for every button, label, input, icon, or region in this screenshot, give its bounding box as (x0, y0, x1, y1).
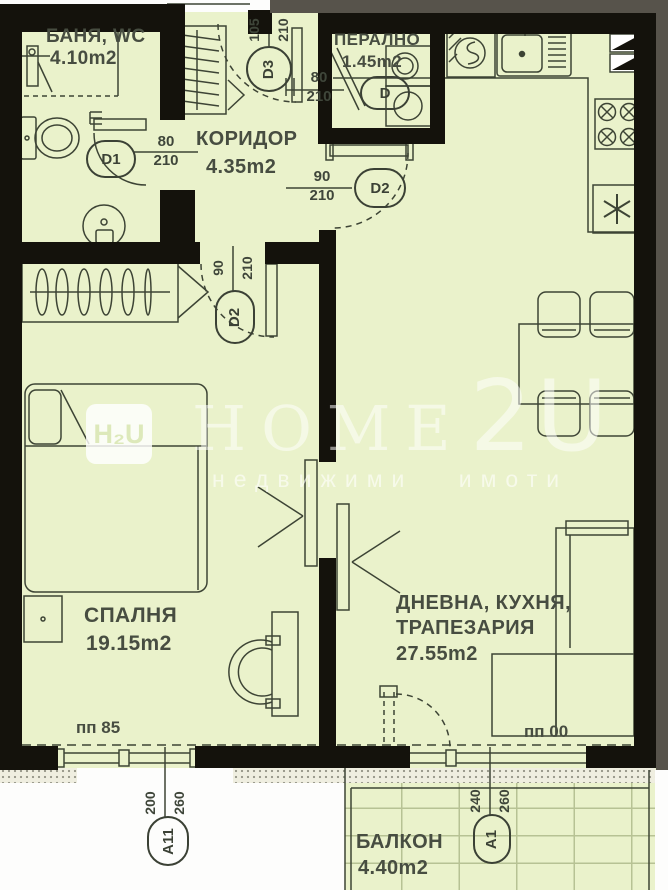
dim-d2-bedroom-width: 90 (211, 260, 226, 276)
wall-right (634, 12, 656, 748)
dim-a1: 240 260 (468, 779, 512, 823)
door-tag-d: D (360, 76, 410, 110)
living-area: 27.55m2 (396, 643, 478, 666)
dim-d1: 80 210 (134, 132, 198, 170)
door-tag-d2-bedroom-text: D2 (227, 307, 244, 326)
desk-chair-symbol (229, 612, 298, 716)
living-label-line1: ДНЕВНА, КУХНЯ, (396, 592, 571, 615)
door-tag-d3: D3 (246, 46, 292, 92)
corridor-area: 4.35m2 (206, 156, 276, 179)
toilet-symbol (21, 117, 79, 159)
door-tag-d1-text: D1 (101, 151, 120, 168)
door-tag-d2-bedroom: D2 (215, 290, 255, 344)
balcony-area: 4.40m2 (358, 857, 428, 880)
corridor-label: КОРИДОР (196, 128, 297, 151)
photo-margin-top (270, 0, 668, 13)
parapet-label-bedroom: пп 85 (76, 718, 120, 738)
bathroom-area: 4.10m2 (50, 48, 117, 70)
dim-d3-width: 105 (247, 18, 262, 41)
living-label-line2: ТРАПЕЗАРИЯ (396, 617, 535, 640)
bedroom-label: СПАЛНЯ (84, 604, 177, 628)
dim-d3-height: 210 (276, 18, 291, 41)
door-tag-d3-text: D3 (261, 59, 278, 78)
wall-bathroom-right-upper (160, 4, 185, 120)
window-a11-symbol (53, 749, 201, 767)
window-tag-a11-text: A11 (159, 828, 176, 855)
dim-a11-height: 260 (172, 791, 187, 814)
dim-d-width: 80 (309, 68, 330, 87)
dim-a1-height: 260 (497, 789, 512, 812)
wall-bottom-left (0, 746, 58, 770)
door-tag-d-text: D (380, 85, 391, 102)
dining-table-symbol (519, 292, 634, 436)
door-tag-d2-living: D2 (354, 168, 406, 208)
dim-a11: 200 260 (143, 781, 187, 825)
bedroom-area: 19.15m2 (86, 632, 172, 656)
photo-margin-right (656, 0, 668, 770)
dim-d3: 105 210 (247, 8, 291, 52)
wall-bottom-right (586, 746, 656, 768)
laundry-label: ПЕРАЛНО (334, 30, 420, 50)
wall-bottom-middle (195, 746, 410, 768)
door-tag-d1: D1 (86, 140, 136, 178)
wall-laundry-bottom (318, 128, 445, 144)
wall-bathroom-bottom (22, 242, 200, 264)
dim-d2-bedroom-height: 210 (240, 256, 255, 279)
wardrobe-symbol (22, 262, 208, 322)
dim-d2-living-width: 90 (312, 167, 333, 186)
dim-d2-bedroom: 90 210 (211, 246, 255, 290)
wall-left (0, 4, 22, 770)
wall-bedroom-living-lower (319, 558, 336, 748)
dim-d-height: 210 (304, 87, 333, 106)
laundry-area: 1.45m2 (342, 52, 402, 72)
wall-bedroom-living-upper (319, 230, 336, 462)
dim-d2-living-height: 210 (307, 186, 336, 205)
dim-d1-height: 210 (151, 151, 180, 170)
bathroom-label: БАНЯ, WC (46, 26, 145, 48)
dim-d2-living: 90 210 (292, 167, 352, 205)
switch-symbol (90, 112, 102, 124)
window-tag-a1-text: A1 (484, 829, 501, 848)
dim-a1-width: 240 (468, 789, 483, 812)
wall-laundry-right (430, 12, 445, 144)
door-tag-d2-living-text: D2 (370, 180, 389, 197)
bathroom-sink-symbol (83, 205, 125, 247)
floor-plan: БАНЯ, WC 4.10m2 ПЕРАЛНО 1.45m2 КОРИДОР 4… (0, 0, 668, 890)
dim-a11-width: 200 (143, 791, 158, 814)
parapet-label-living: пп 00 (524, 722, 568, 742)
balcony-label: БАЛКОН (356, 831, 443, 854)
dim-d1-width: 80 (156, 132, 177, 151)
dim-d: 80 210 (294, 68, 344, 106)
